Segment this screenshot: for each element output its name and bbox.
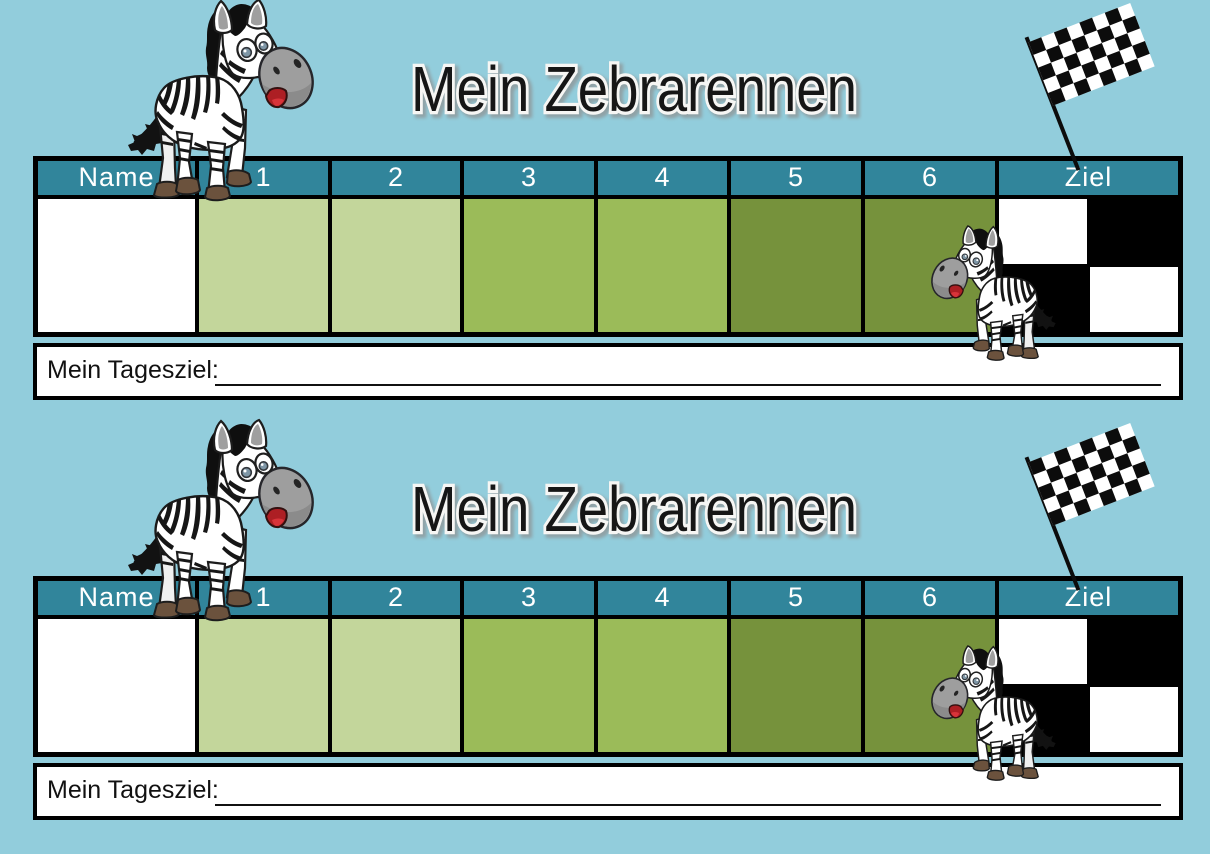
svg-text:Mein Zebrarennen: Mein Zebrarennen <box>411 53 857 125</box>
svg-text:Mein Zebrarennen: Mein Zebrarennen <box>411 473 857 545</box>
